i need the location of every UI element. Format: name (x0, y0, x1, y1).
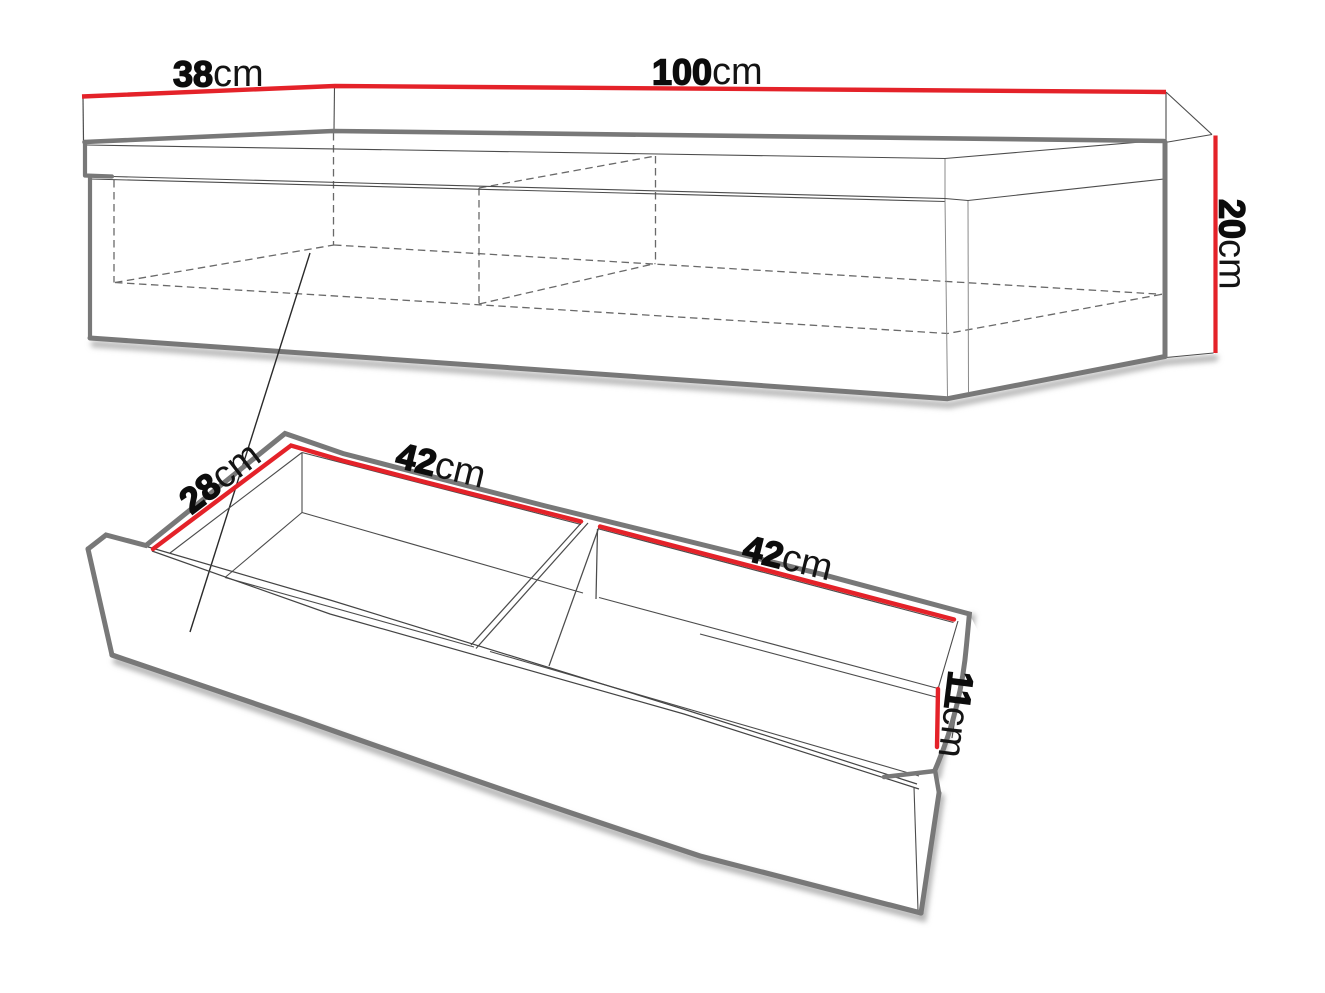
svg-text:38: 38 (173, 54, 213, 95)
svg-text:20: 20 (1212, 199, 1253, 239)
svg-text:cm: cm (213, 53, 264, 95)
svg-text:100: 100 (652, 52, 712, 93)
svg-text:cm: cm (930, 705, 978, 760)
svg-text:cm: cm (1211, 239, 1253, 290)
svg-text:cm: cm (712, 51, 763, 93)
